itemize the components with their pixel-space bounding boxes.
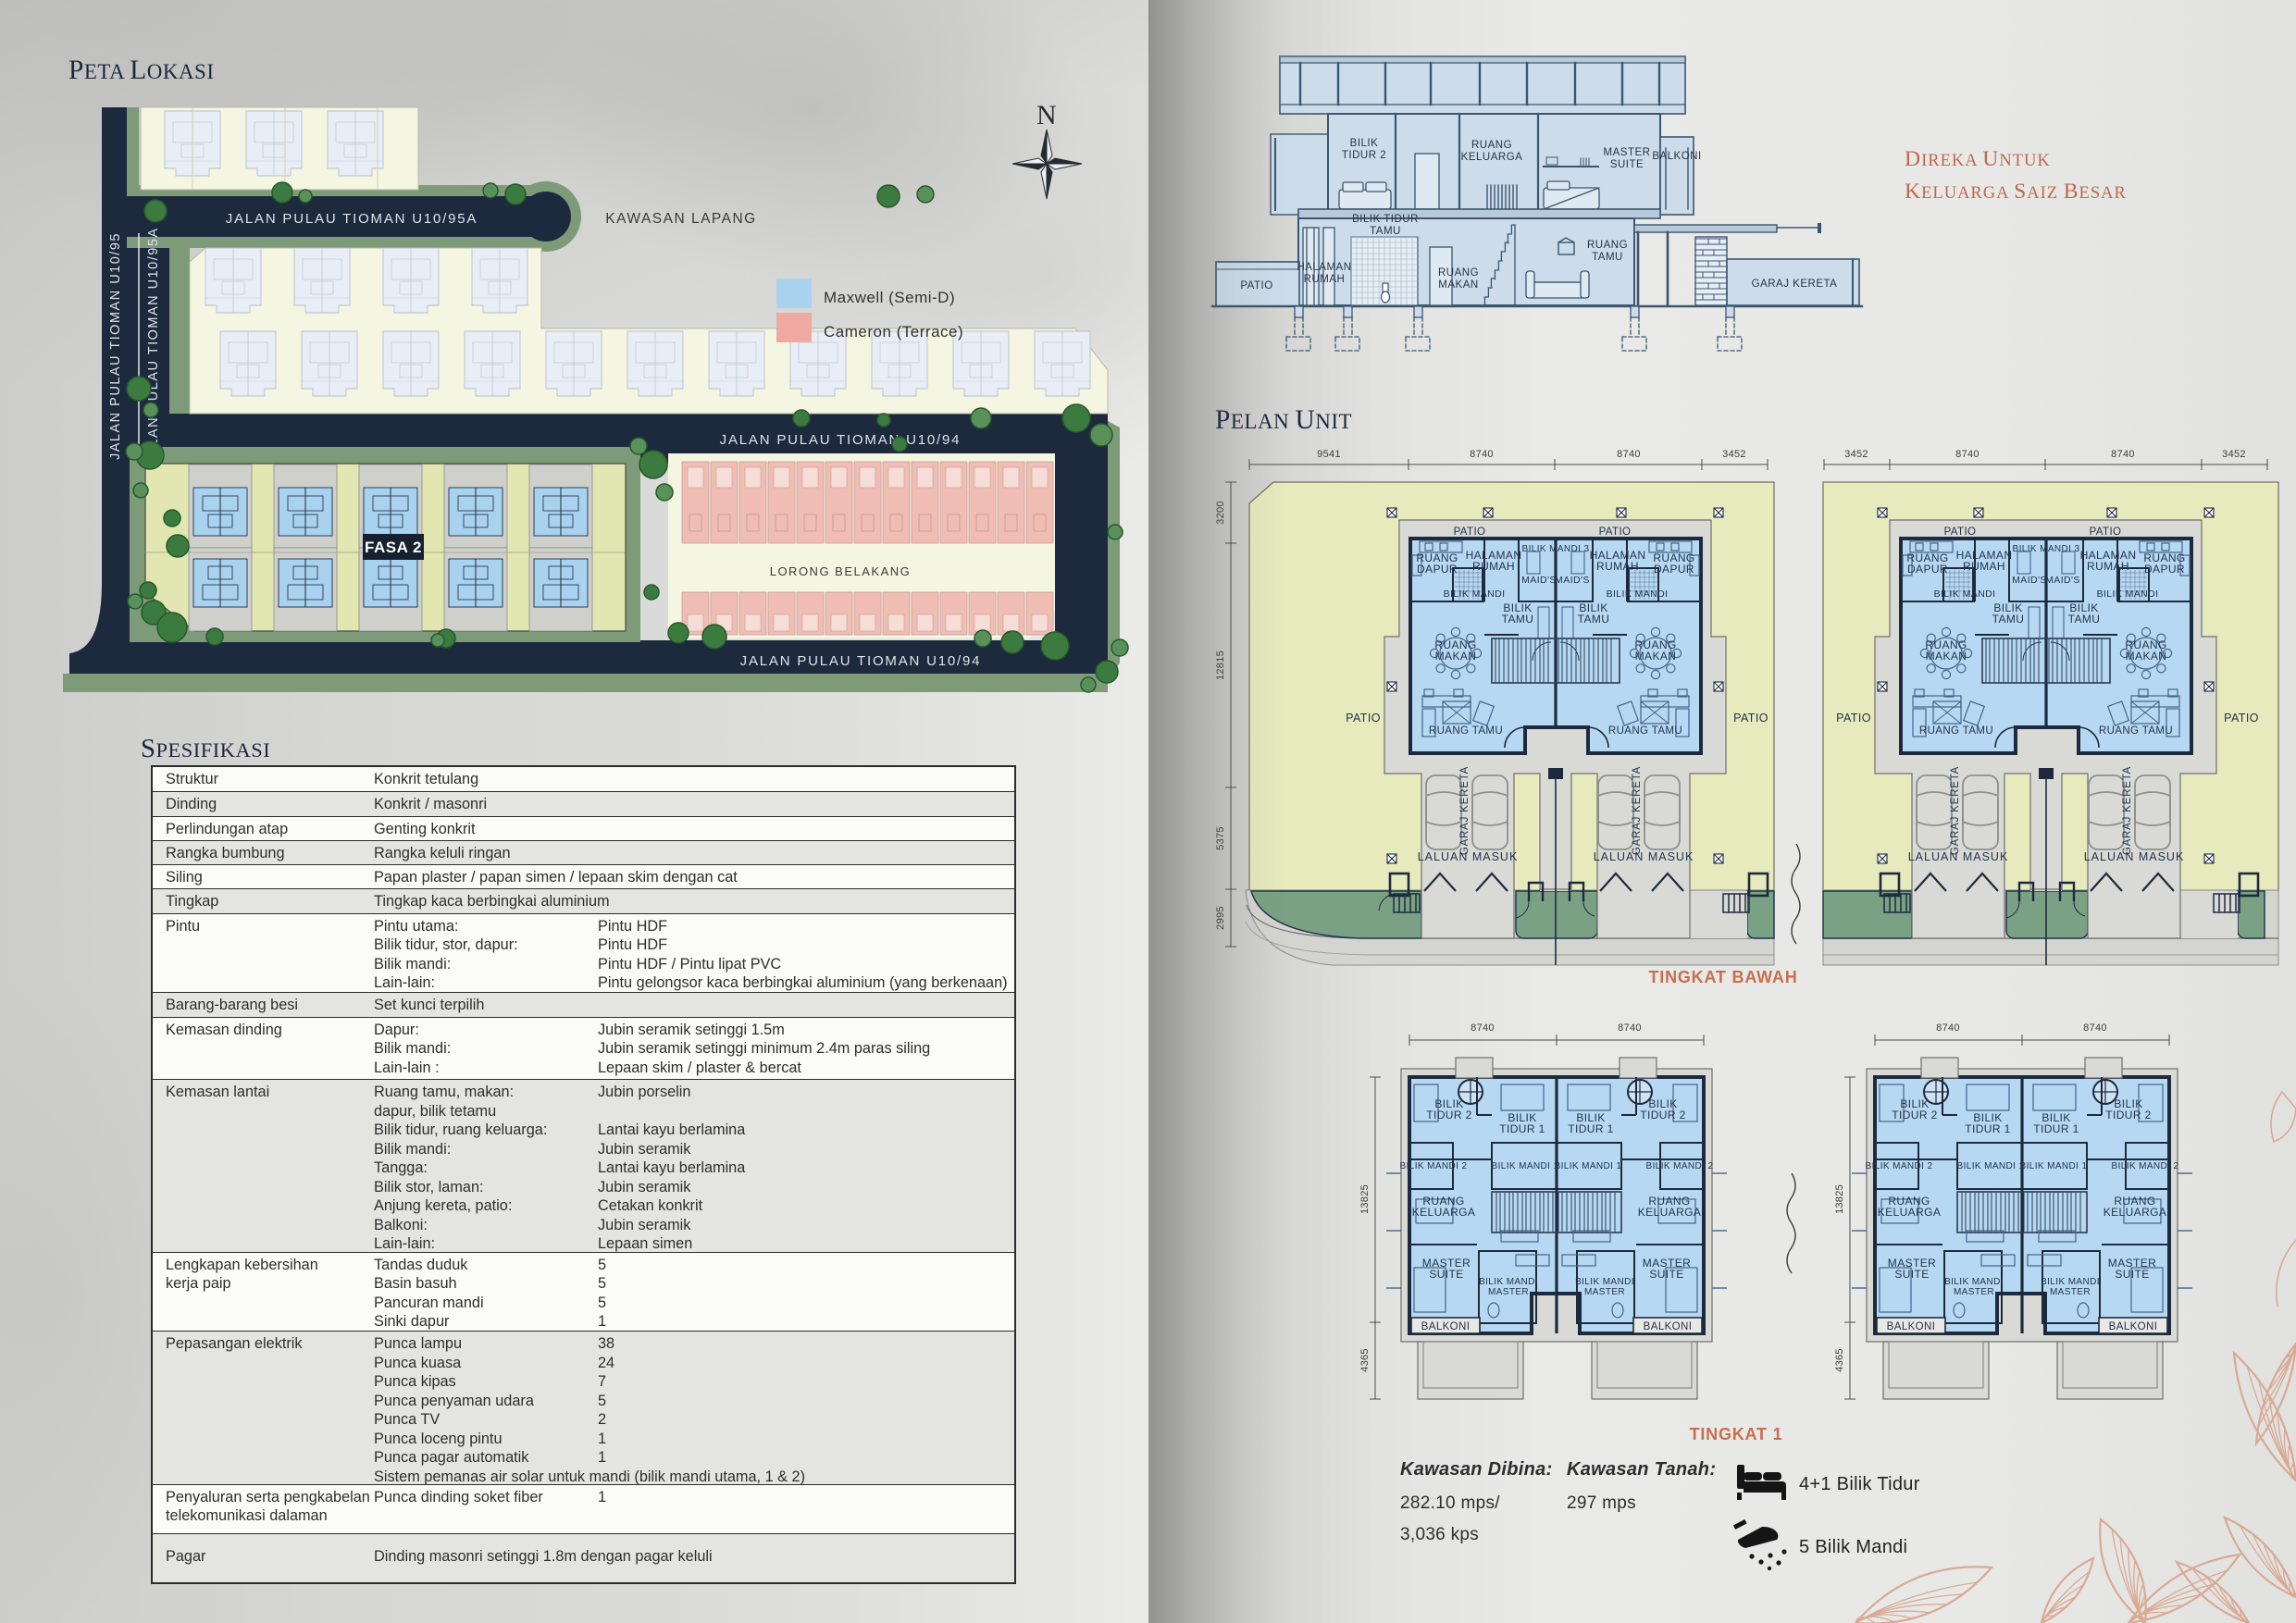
svg-text:TIDUR 1: TIDUR 1 (1568, 1122, 1613, 1135)
svg-text:BILIK MANDI 2: BILIK MANDI 2 (1866, 1161, 1933, 1171)
svg-text:BILIK MANDI 1: BILIK MANDI 1 (1555, 1161, 1622, 1171)
svg-text:TAMU: TAMU (1502, 613, 1534, 626)
svg-text:RUANG TAMU: RUANG TAMU (2099, 725, 2173, 737)
svg-text:DAPUR: DAPUR (2144, 563, 2185, 576)
svg-text:Kawasan Tanah:: Kawasan Tanah: (1567, 1459, 1716, 1480)
svg-text:MAID'S: MAID'S (2045, 575, 2080, 586)
svg-text:TIDUR 1: TIDUR 1 (1499, 1122, 1545, 1135)
svg-text:PATIO: PATIO (1346, 712, 1381, 725)
svg-text:GARAJ KERETA: GARAJ KERETA (1459, 766, 1471, 855)
svg-text:BILIK MANDI 2: BILIK MANDI 2 (1400, 1161, 1468, 1171)
svg-text:BILIK MANDI: BILIK MANDI (1444, 588, 1506, 600)
svg-text:KAWASAN LAPANG: KAWASAN LAPANG (605, 211, 756, 227)
svg-text:8740: 8740 (1955, 449, 1980, 460)
svg-text:PATIO: PATIO (1836, 712, 1871, 725)
svg-text:MAID'S: MAID'S (1555, 575, 1590, 586)
svg-text:5 Bilik Mandi: 5 Bilik Mandi (1799, 1537, 1907, 1557)
svg-text:JALAN PULAU TIOMAN U10/95A: JALAN PULAU TIOMAN U10/95A (146, 227, 161, 465)
svg-text:MAID'S: MAID'S (2012, 575, 2047, 586)
svg-text:12815: 12815 (1215, 650, 1226, 680)
svg-text:RUANG: RUANG (1438, 267, 1479, 279)
svg-text:RUMAH: RUMAH (1596, 560, 1639, 573)
svg-text:BALKONI: BALKONI (1887, 1321, 1936, 1332)
svg-text:RUMAH: RUMAH (1472, 560, 1515, 573)
svg-text:Cameron (Terrace): Cameron (Terrace) (824, 323, 963, 341)
svg-text:BILIK MANDI 1: BILIK MANDI 1 (1957, 1161, 2025, 1171)
svg-text:8740: 8740 (1471, 1022, 1495, 1034)
svg-text:BALKONI: BALKONI (1644, 1321, 1693, 1332)
svg-text:TIDUR 2: TIDUR 2 (2105, 1109, 2151, 1121)
svg-text:MASTER: MASTER (1488, 1287, 1529, 1297)
svg-text:8740: 8740 (1618, 1022, 1642, 1034)
svg-text:DAPUR: DAPUR (1417, 563, 1458, 576)
svg-text:RUMAH: RUMAH (1304, 274, 1346, 285)
svg-text:TAMU: TAMU (1592, 252, 1623, 263)
svg-text:TIDUR 1: TIDUR 1 (2033, 1122, 2079, 1135)
svg-text:JALAN PULAU TIOMAN U10/94: JALAN PULAU TIOMAN U10/94 (720, 432, 962, 448)
svg-text:KELUARGA: KELUARGA (1461, 152, 1523, 163)
svg-text:3,036 kps: 3,036 kps (1400, 1525, 1479, 1544)
svg-text:8740: 8740 (1936, 1022, 1960, 1034)
svg-text:PATIO: PATIO (1944, 527, 1977, 538)
svg-text:JALAN PULAU TIOMAN U10/94: JALAN PULAU TIOMAN U10/94 (740, 653, 982, 669)
svg-text:BILIK MANDI: BILIK MANDI (1479, 1277, 1538, 1287)
svg-text:TAMU: TAMU (1992, 613, 2025, 626)
svg-text:DAPUR: DAPUR (1654, 563, 1694, 576)
svg-text:9541: 9541 (1317, 449, 1341, 460)
svg-text:Kawasan Dibina:: Kawasan Dibina: (1400, 1459, 1553, 1480)
svg-text:TIDUR 2: TIDUR 2 (1426, 1109, 1471, 1121)
svg-text:SUITE: SUITE (1429, 1268, 1463, 1281)
svg-text:BILIK MANDI 3: BILIK MANDI 3 (2013, 544, 2080, 554)
svg-text:BILIK MANDI: BILIK MANDI (1944, 1277, 2004, 1287)
svg-text:DAPUR: DAPUR (1907, 563, 1948, 576)
svg-text:LALUAN MASUK: LALUAN MASUK (1418, 850, 1519, 863)
svg-text:N: N (1036, 100, 1057, 130)
svg-text:TAMU: TAMU (1578, 613, 1610, 626)
svg-text:BILIK: BILIK (1350, 138, 1379, 149)
svg-text:TIDUR 2: TIDUR 2 (1640, 1109, 1685, 1121)
svg-text:8740: 8740 (1617, 449, 1641, 460)
svg-text:BILIK MANDI: BILIK MANDI (1934, 588, 1996, 600)
svg-text:282.10 mps/: 282.10 mps/ (1400, 1493, 1500, 1513)
svg-text:TIDUR 2: TIDUR 2 (1892, 1109, 1937, 1121)
svg-text:JALAN PULAU TIOMAN U10/95A: JALAN PULAU TIOMAN U10/95A (226, 211, 478, 227)
svg-text:13825: 13825 (1359, 1184, 1371, 1214)
svg-text:BILIK MANDI 1: BILIK MANDI 1 (1492, 1161, 1559, 1171)
svg-text:RUANG: RUANG (1471, 140, 1512, 151)
svg-text:MASTER: MASTER (2050, 1287, 2091, 1297)
svg-text:MASTER: MASTER (1954, 1287, 1994, 1297)
svg-text:BALKONI: BALKONI (2109, 1321, 2158, 1332)
svg-text:PATIO: PATIO (1454, 527, 1486, 538)
svg-text:5375: 5375 (1215, 826, 1226, 850)
svg-text:RUMAH: RUMAH (1963, 560, 2005, 573)
svg-text:BILIK TIDUR: BILIK TIDUR (1352, 214, 1419, 225)
svg-text:BILIK MANDI 3: BILIK MANDI 3 (1522, 544, 1590, 554)
svg-text:GARAJ KERETA: GARAJ KERETA (1752, 279, 1838, 290)
svg-text:TINGKAT BAWAH: TINGKAT BAWAH (1648, 968, 1797, 986)
svg-text:SUITE: SUITE (1610, 159, 1644, 170)
svg-text:8740: 8740 (2111, 449, 2135, 460)
svg-text:GARAJ KERETA: GARAJ KERETA (2122, 766, 2133, 855)
svg-text:PATIO: PATIO (2224, 712, 2259, 725)
svg-text:TAMU: TAMU (2068, 613, 2101, 626)
svg-text:FASA 2: FASA 2 (365, 539, 422, 556)
svg-text:PATIO: PATIO (2090, 527, 2122, 538)
svg-text:BALKONI: BALKONI (1652, 151, 1701, 162)
svg-text:2995: 2995 (1215, 906, 1226, 930)
svg-text:LALUAN MASUK: LALUAN MASUK (1908, 850, 2009, 863)
svg-text:TINGKAT 1: TINGKAT 1 (1690, 1425, 1783, 1443)
svg-text:BILIK MANDI: BILIK MANDI (2097, 588, 2159, 600)
svg-text:SUITE: SUITE (2115, 1268, 2149, 1281)
svg-text:MAKAN: MAKAN (1438, 279, 1478, 291)
svg-text:4365: 4365 (1834, 1348, 1845, 1372)
svg-text:RUANG TAMU: RUANG TAMU (1429, 725, 1503, 737)
svg-text:HALAMAN: HALAMAN (1297, 262, 1351, 273)
svg-text:BILIK MANDI: BILIK MANDI (2041, 1277, 2100, 1287)
svg-text:RUANG TAMU: RUANG TAMU (1608, 725, 1682, 737)
svg-text:KELUARGA: KELUARGA (1412, 1206, 1476, 1219)
svg-text:LALUAN MASUK: LALUAN MASUK (1594, 850, 1694, 863)
svg-text:297 mps: 297 mps (1567, 1493, 1636, 1513)
svg-text:BALKONI: BALKONI (1421, 1321, 1471, 1332)
svg-text:PATIO: PATIO (1733, 712, 1769, 725)
svg-text:8740: 8740 (2083, 1022, 2107, 1034)
svg-text:MAKAN: MAKAN (1435, 650, 1477, 663)
svg-text:BILIK MANDI 2: BILIK MANDI 2 (2112, 1161, 2179, 1171)
svg-text:KELUARGA: KELUARGA (1878, 1206, 1942, 1219)
svg-text:GARAJ KERETA: GARAJ KERETA (1632, 766, 1643, 855)
svg-text:TAMU: TAMU (1370, 226, 1401, 237)
svg-text:LALUAN MASUK: LALUAN MASUK (2084, 850, 2185, 863)
svg-text:JALAN PULAU TIOMAN U10/95: JALAN PULAU TIOMAN U10/95 (108, 232, 123, 460)
svg-text:RUMAH: RUMAH (2087, 560, 2129, 573)
svg-text:4365: 4365 (1359, 1348, 1371, 1372)
svg-text:13825: 13825 (1834, 1184, 1845, 1214)
svg-text:GARAJ KERETA: GARAJ KERETA (1950, 766, 1961, 855)
svg-text:RUANG: RUANG (1587, 240, 1628, 251)
svg-text:MAKAN: MAKAN (2126, 650, 2167, 663)
svg-text:BILIK MANDI: BILIK MANDI (1575, 1277, 1634, 1287)
svg-text:LORONG BELAKANG: LORONG BELAKANG (770, 564, 912, 578)
svg-text:PATIO: PATIO (1599, 527, 1632, 538)
svg-text:MASTER: MASTER (1604, 147, 1651, 158)
svg-text:Maxwell (Semi-D): Maxwell (Semi-D) (824, 289, 955, 306)
svg-text:SUITE: SUITE (1649, 1268, 1683, 1281)
svg-text:MAKAN: MAKAN (1635, 650, 1677, 663)
svg-text:4+1 Bilik Tidur: 4+1 Bilik Tidur (1799, 1474, 1920, 1494)
svg-text:BILIK MANDI 1: BILIK MANDI 1 (2020, 1161, 2088, 1171)
svg-text:TIDUR 2: TIDUR 2 (1342, 150, 1386, 161)
svg-text:MAKAN: MAKAN (1926, 650, 1967, 663)
svg-text:3452: 3452 (2222, 449, 2246, 460)
svg-text:MAID'S: MAID'S (1521, 575, 1557, 586)
svg-text:3452: 3452 (1722, 449, 1746, 460)
svg-text:KELUARGA: KELUARGA (2104, 1206, 2167, 1219)
svg-text:TIDUR 1: TIDUR 1 (1965, 1122, 2010, 1135)
svg-text:SUITE: SUITE (1894, 1268, 1929, 1281)
svg-text:KELUARGA: KELUARGA (1638, 1206, 1702, 1219)
svg-text:8740: 8740 (1470, 449, 1494, 460)
svg-text:3200: 3200 (1215, 501, 1226, 525)
svg-text:BILIK MANDI 2: BILIK MANDI 2 (1646, 1161, 1714, 1171)
svg-text:3452: 3452 (1844, 449, 1868, 460)
svg-text:MASTER: MASTER (1584, 1287, 1625, 1297)
svg-text:RUANG TAMU: RUANG TAMU (1919, 725, 1993, 737)
svg-text:BILIK MANDI: BILIK MANDI (1607, 588, 1669, 600)
svg-text:PATIO: PATIO (1240, 280, 1272, 291)
